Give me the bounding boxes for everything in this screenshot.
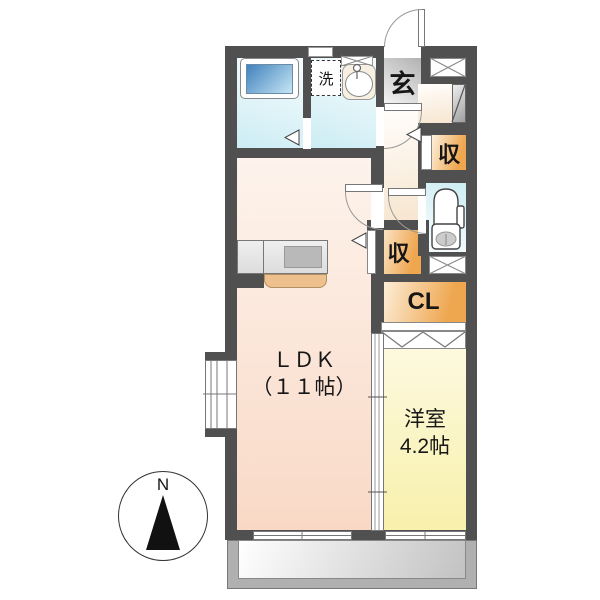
window-left-cap-bottom bbox=[205, 429, 237, 437]
wall-left bbox=[225, 46, 237, 540]
ldk-name: ＬＤＫ bbox=[237, 347, 371, 374]
entrance-door-arc bbox=[384, 9, 422, 47]
sink-basin bbox=[345, 71, 373, 97]
wall-entrance-right bbox=[421, 58, 430, 84]
wall-kitchen-stub bbox=[237, 274, 264, 288]
wall-under-meterbox bbox=[430, 77, 466, 84]
closet-text: CL bbox=[408, 288, 440, 316]
wall-closet-left bbox=[371, 274, 381, 331]
storage-lower-door bbox=[367, 230, 376, 274]
storage-lower-text: 収 bbox=[387, 236, 409, 268]
room-toilet bbox=[426, 183, 466, 252]
closet-opening bbox=[381, 322, 466, 331]
storage-upper-text: 収 bbox=[438, 137, 460, 169]
wall-right bbox=[466, 46, 477, 540]
wall-above-storage-upper bbox=[418, 123, 466, 135]
storage-lower-label: 収 bbox=[376, 230, 421, 274]
ldk-size: （１１帖） bbox=[237, 374, 371, 401]
bathtub-inner bbox=[246, 64, 293, 94]
fixed-window-meterbox bbox=[430, 58, 466, 77]
window-ldk-left bbox=[205, 360, 237, 429]
compass-north-label: N bbox=[143, 475, 183, 495]
closet-label: CL bbox=[381, 282, 466, 322]
storage-upper-door bbox=[421, 135, 432, 170]
fixed-window-below-toilet bbox=[429, 256, 466, 274]
wall-under-washarea bbox=[225, 148, 384, 158]
entrance-opening bbox=[384, 46, 421, 58]
western-name: 洋室 bbox=[384, 406, 466, 433]
north-letter: N bbox=[157, 475, 169, 495]
window-left-cap-top bbox=[205, 352, 237, 360]
kitchen-stove bbox=[284, 246, 322, 268]
storage-upper-label: 収 bbox=[432, 135, 466, 170]
bathroom-door-opening bbox=[303, 118, 311, 149]
wall-closet-top bbox=[371, 274, 466, 282]
western-room-label: 洋室 4.2帖 bbox=[384, 406, 466, 462]
balcony-floor bbox=[238, 540, 466, 579]
shoe-cabinet bbox=[452, 84, 466, 123]
washroom-door-opening bbox=[376, 107, 384, 146]
entrance-label: 玄 bbox=[384, 58, 421, 107]
room-hall-nook bbox=[418, 84, 452, 123]
entrance-text: 玄 bbox=[389, 64, 415, 101]
wall-above-toilet bbox=[418, 170, 466, 183]
partition-sliding-door bbox=[371, 333, 384, 531]
floor-plan: 洗 N 玄 収 収 CL ＬＤＫ （１１帖） 洋室 4.2帖 bbox=[0, 0, 600, 600]
closet-folding-door bbox=[381, 331, 466, 349]
window-top-washroom bbox=[308, 47, 333, 57]
window-western-bottom bbox=[385, 531, 466, 540]
ldk-label: ＬＤＫ （１１帖） bbox=[237, 347, 371, 403]
kitchen-counter-divider bbox=[263, 240, 264, 274]
ldk-door-leaf bbox=[345, 184, 383, 192]
window-ldk-bottom bbox=[253, 531, 352, 540]
laundry-label: 洗 bbox=[318, 68, 333, 89]
toilet-door-leaf bbox=[388, 188, 426, 196]
north-arrow bbox=[146, 495, 180, 550]
kitchen-counter-base bbox=[264, 274, 327, 288]
laundry-space: 洗 bbox=[311, 60, 341, 96]
western-size: 4.2帖 bbox=[384, 433, 466, 460]
